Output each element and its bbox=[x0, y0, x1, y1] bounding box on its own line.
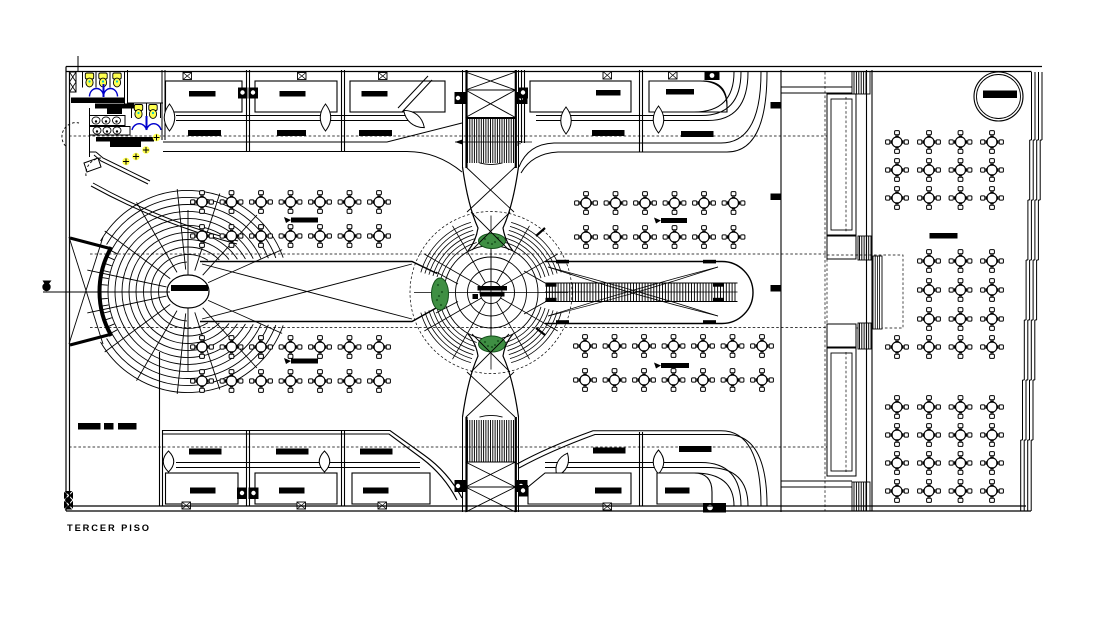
svg-text:F: F bbox=[517, 141, 521, 148]
svg-text:TERCER PISO: TERCER PISO bbox=[67, 523, 151, 533]
